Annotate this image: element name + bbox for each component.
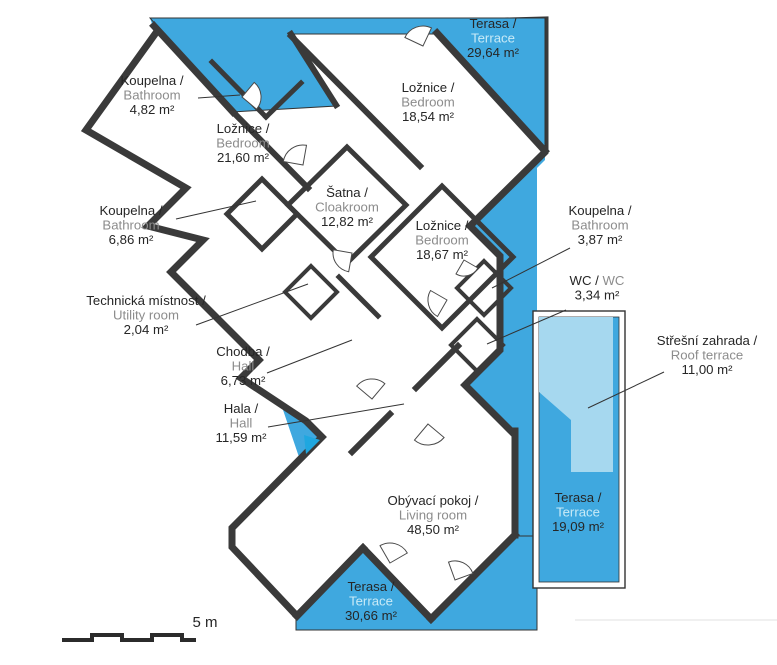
label-wc-334: WC / WC3,34 m² — [570, 273, 625, 303]
label-terrace-right: Terasa /Terrace19,09 m² — [552, 490, 605, 534]
label-terrace-top: Terasa /Terrace29,64 m² — [467, 16, 520, 60]
label-bedroom-1867: Ložnice /Bedroom18,67 m² — [415, 218, 469, 262]
scale-bar-segments — [62, 635, 196, 640]
label-roof-terrace: Střešní zahrada /Roof terrace11,00 m² — [657, 333, 758, 377]
label-bedroom-1854: Ložnice /Bedroom18,54 m² — [401, 80, 455, 124]
label-hall-1159: Hala /Hall11,59 m² — [215, 401, 267, 445]
scale-bar-label: 5 m — [192, 614, 217, 631]
floor-plan-page: Terasa /Terrace29,64 m²Koupelna /Bathroo… — [0, 0, 777, 665]
label-bathroom-387: Koupelna /Bathroom3,87 m² — [568, 203, 631, 247]
roof-terrace-block — [533, 311, 625, 588]
label-bathroom-482: Koupelna /Bathroom4,82 m² — [120, 73, 183, 117]
label-terrace-bottom: Terasa /Terrace30,66 m² — [345, 579, 398, 623]
label-bedroom-2160: Ložnice /Bedroom21,60 m² — [216, 121, 270, 165]
floor-plan-drawing: Terasa /Terrace29,64 m²Koupelna /Bathroo… — [0, 0, 777, 665]
label-utility-204: Technická místnost /Utility room2,04 m² — [86, 293, 206, 337]
scale-bar: 5 m — [62, 614, 218, 640]
label-bathroom-686: Koupelna /Bathroom6,86 m² — [99, 203, 162, 247]
